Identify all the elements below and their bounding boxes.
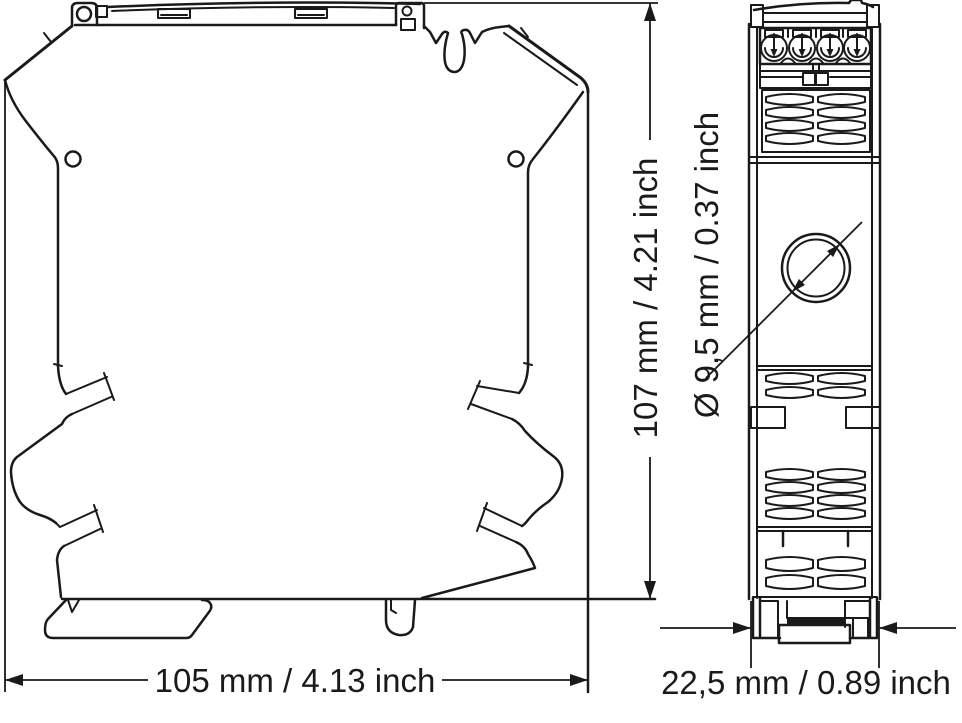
vent-slat — [818, 107, 865, 118]
vent-group-lower — [766, 469, 865, 519]
dimension-height-label: 107 mm / 4.21 inch — [627, 158, 664, 439]
wire-tab-left-upper — [66, 373, 114, 414]
vent-slat — [818, 387, 865, 398]
vent-slat — [818, 469, 865, 480]
vent-slat — [818, 133, 865, 144]
extension-lines-depth — [751, 601, 879, 668]
vent-slat — [766, 482, 813, 493]
vent-slat — [766, 508, 813, 519]
wire-tab-right-lower — [477, 503, 522, 542]
dimension-height: 107 mm / 4.21 inch — [424, 3, 664, 599]
dimension-diameter-label: Ø 9,5 mm / 0.37 inch — [688, 112, 725, 418]
snap-hooks — [783, 531, 848, 546]
left-profile-bottom — [57, 546, 64, 597]
vent-slat — [818, 508, 865, 519]
vent-slat — [766, 133, 813, 144]
front-view — [749, 0, 880, 643]
vent-slat — [766, 107, 813, 118]
vent-group-top — [766, 94, 865, 144]
arrowhead-down-icon — [644, 581, 656, 599]
vent-group-bottom — [766, 557, 865, 589]
cap-bracket-right — [867, 5, 879, 27]
side-view — [5, 3, 655, 692]
din-foot-tooth — [68, 600, 79, 612]
section-divider-upper — [749, 157, 880, 163]
center-key-left — [803, 73, 815, 85]
top-slot — [295, 9, 327, 18]
chamfer-right — [509, 26, 588, 92]
screw-hole-left — [66, 152, 81, 167]
vent-slat — [766, 557, 813, 571]
foot-block-right — [845, 601, 870, 618]
bottom-hook-inner — [391, 600, 396, 613]
top-cap — [754, 0, 873, 10]
vent-slat — [818, 575, 865, 589]
dimension-width-label: 105 mm / 4.13 inch — [155, 662, 436, 699]
top-bar-inner-edge — [112, 7, 394, 11]
chamfer-right-inner — [504, 33, 577, 85]
screw-hole-right — [509, 152, 524, 167]
arrowhead-left-icon — [5, 674, 23, 686]
section-divider-mid — [757, 366, 872, 370]
arrowhead-inward-right-icon — [879, 622, 897, 634]
section-divider-lower — [757, 527, 872, 531]
vent-slat — [818, 557, 865, 571]
vent-slat — [766, 575, 813, 589]
technical-drawing-canvas: 105 mm / 4.13 inch 107 mm / 4.21 inch Ø … — [0, 0, 962, 723]
vent-slat — [766, 373, 813, 384]
dimension-depth-label: 22,5 mm / 0.89 inch — [661, 664, 951, 701]
vent-slat — [818, 495, 865, 506]
vent-slat — [766, 120, 813, 131]
foot-slide-plate — [779, 625, 850, 643]
vent-slat — [766, 495, 813, 506]
left-profile — [58, 366, 66, 394]
clamp-scallop — [781, 59, 795, 64]
left-profile-scurve — [11, 414, 72, 523]
right-profile-scurve — [512, 419, 562, 526]
wire-tab-left-lower — [56, 505, 103, 546]
vent-slat — [766, 469, 813, 480]
latch-profile — [424, 26, 509, 72]
vent-slat — [766, 94, 813, 105]
center-key-right — [816, 73, 828, 85]
right-inner-edge-tick — [524, 363, 532, 365]
hinge-hole — [77, 7, 91, 21]
right-inner-edge — [528, 92, 583, 367]
vent-group-mid — [766, 373, 865, 398]
latch-hole — [403, 7, 412, 16]
vent-slat — [818, 373, 865, 384]
vent-slat — [818, 94, 865, 105]
chamfer-left — [5, 26, 72, 80]
right-profile-bottom — [422, 542, 535, 598]
top-slot — [158, 9, 190, 18]
foot-block-left — [760, 601, 778, 638]
foot-block-right-lower — [853, 618, 868, 638]
arrowhead-up-icon — [644, 3, 656, 21]
left-edge — [5, 80, 58, 366]
arrowhead-inward-left-icon — [733, 622, 751, 634]
arrowhead-right-icon — [570, 674, 588, 686]
right-profile — [519, 367, 528, 393]
vent-slat — [818, 120, 865, 131]
dimension-drawing-svg: 105 mm / 4.13 inch 107 mm / 4.21 inch Ø … — [0, 0, 962, 723]
dimension-depth: 22,5 mm / 0.89 inch — [660, 601, 956, 701]
side-notch-right — [846, 407, 880, 428]
chamfer-left-tick — [44, 33, 51, 42]
vent-slat — [818, 482, 865, 493]
wire-tab-right-upper — [468, 381, 519, 419]
latch-window — [401, 19, 415, 30]
clamp-scallop — [809, 59, 823, 64]
inner-rails — [757, 28, 872, 598]
cap-inner-lines — [763, 13, 867, 22]
vent-slat — [766, 387, 813, 398]
